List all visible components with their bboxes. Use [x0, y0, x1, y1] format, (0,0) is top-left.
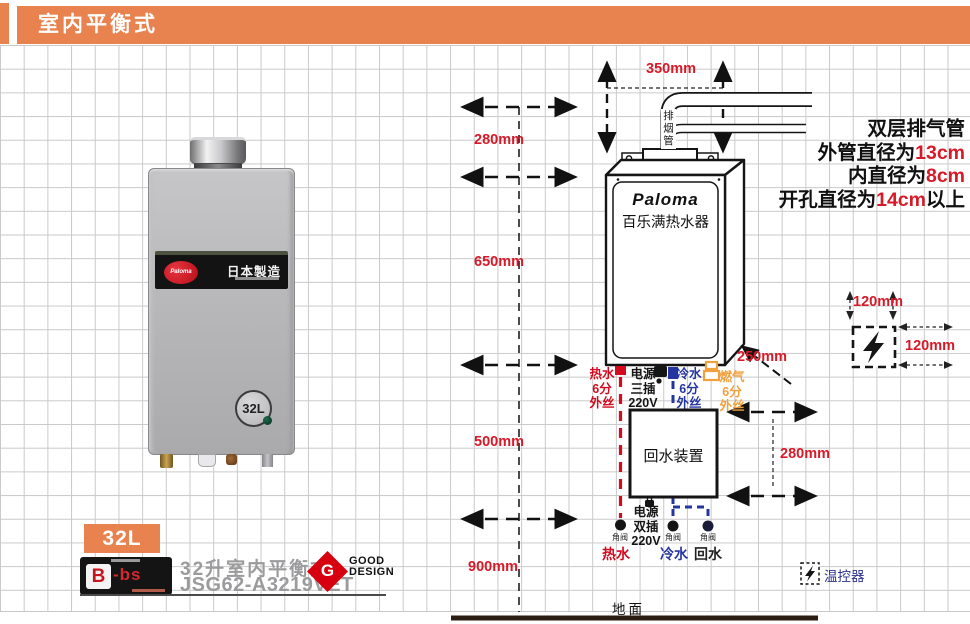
- capacity-badge: 32L: [84, 524, 160, 553]
- installation-diagram-page: 室内平衡式: [0, 0, 970, 624]
- dim-wall-low: 500mm: [474, 434, 524, 450]
- bl-bs-cert-logo: B -bs: [80, 557, 172, 595]
- pipe-fitting-copper: [226, 454, 237, 465]
- pipe-hot-label: 热水: [601, 544, 631, 564]
- valve-label-hot: 角阀: [611, 532, 629, 543]
- exhaust-note-line2: 外管直径为13cm: [779, 142, 965, 166]
- exhaust-note-line4: 开孔直径为14cm以上: [779, 189, 965, 213]
- conn-gas-label: 燃气6分外丝: [717, 370, 747, 414]
- return-device-label: 回水装置: [630, 445, 717, 466]
- pipe-return-label: 回水: [693, 544, 723, 564]
- dim-thermo-top: 120mm: [853, 294, 903, 310]
- cert-bottom-caption-bar: [132, 589, 165, 592]
- band-subtext-bar: [235, 277, 279, 280]
- flue-pipe-label: 排烟管: [661, 109, 676, 149]
- conn-hot-label: 热水6分外丝: [587, 367, 617, 411]
- pipe-fitting-brass: [160, 454, 173, 468]
- header-accent-chip: [0, 3, 9, 44]
- cert-top-caption-bar: [111, 559, 140, 562]
- dim-side-clearance: 250mm: [737, 349, 787, 365]
- dim-wall-mid: 650mm: [474, 254, 524, 270]
- exhaust-note-line3: 内直径为8cm: [779, 165, 965, 189]
- conn-cold-label: 冷水6分外丝: [674, 367, 704, 411]
- unit-brand-label: Paloma: [612, 190, 719, 210]
- pipe-fitting-white: [198, 454, 216, 467]
- ground-label: 地面: [612, 598, 645, 618]
- valve-label-cold: 角阀: [664, 532, 682, 543]
- pipe-fitting-gray: [262, 454, 273, 467]
- footer-divider-line: [80, 594, 386, 596]
- indicator-dot: [263, 416, 272, 425]
- dim-flue-width: 350mm: [646, 61, 696, 77]
- flue-cap: [190, 137, 246, 163]
- conn-power-label: 电源三插220V: [628, 367, 658, 411]
- dim-wall-top: 280mm: [474, 132, 524, 148]
- pipe-cold-label: 冷水: [659, 544, 689, 564]
- good-design-g-letter: G: [313, 556, 342, 585]
- cert-bs-text: -bs: [113, 565, 142, 585]
- capacity-dial-label: 32L: [242, 401, 264, 416]
- thermostat-label: 温控器: [824, 565, 865, 585]
- dim-thermo-side: 120mm: [905, 338, 955, 354]
- capacity-dial: 32L: [235, 390, 272, 427]
- good-design-text: GOOD DESIGN: [349, 556, 394, 578]
- exhaust-note-line1: 双层排气管: [779, 118, 965, 142]
- dim-return-height: 280mm: [780, 446, 830, 462]
- heater-product-photo: Paloma 日本製造 32L: [148, 137, 295, 470]
- header-bar: 室内平衡式: [17, 6, 970, 44]
- power-lower-label: 电源双插220V: [629, 505, 663, 549]
- dim-floor: 900mm: [468, 559, 518, 575]
- paloma-logo-oval: Paloma: [164, 261, 198, 284]
- unit-name-label: 百乐满热水器: [610, 211, 721, 232]
- page-title: 室内平衡式: [17, 6, 970, 43]
- brand-band: Paloma 日本製造: [155, 251, 288, 289]
- exhaust-pipe-note: 双层排气管 外管直径为13cm 内直径为8cm 开孔直径为14cm以上: [779, 118, 965, 212]
- heater-body: Paloma 日本製造 32L: [148, 168, 295, 455]
- valve-label-return: 角阀: [699, 532, 717, 543]
- cert-b-mark: B: [86, 564, 111, 589]
